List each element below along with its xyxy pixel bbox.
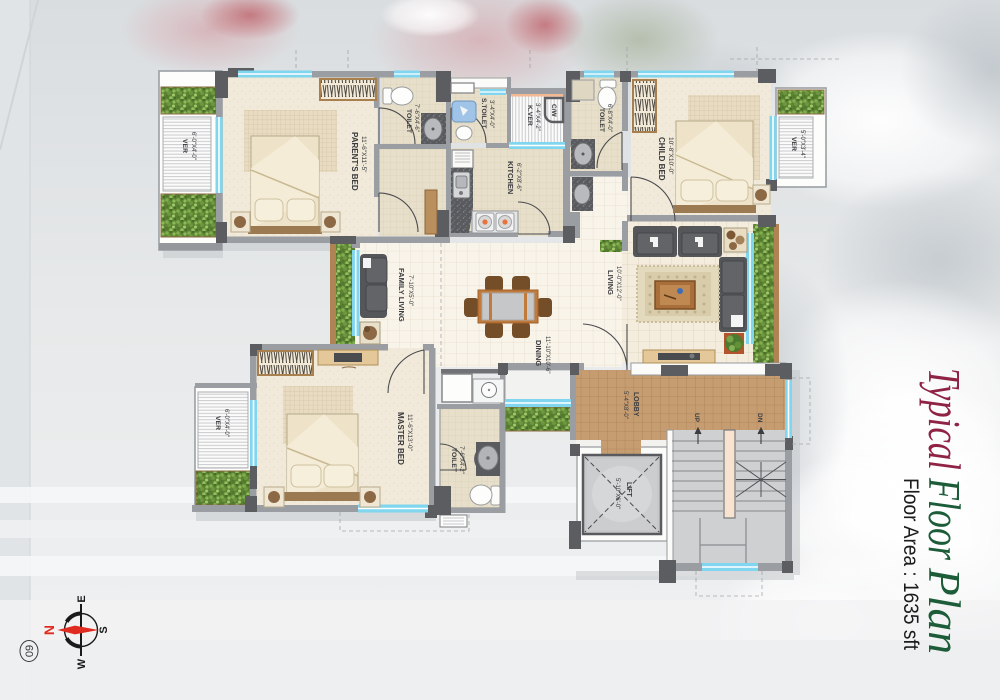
svg-text:6'-0"X4'-0": 6'-0"X4'-0" [223,409,229,437]
svg-text:C/W: C/W [550,104,557,118]
svg-text:6'-2"X8'-6": 6'-2"X8'-6" [515,163,521,191]
svg-text:FAMILY LIVING: FAMILY LIVING [397,268,406,322]
svg-text:11'-10"X10'-6": 11'-10"X10'-6" [544,336,550,373]
svg-text:VER: VER [790,137,797,151]
svg-text:TOILET: TOILET [450,448,457,473]
svg-text:TOILET: TOILET [598,108,605,133]
svg-text:MASTER BED: MASTER BED [396,412,405,465]
svg-text:10'-0"X12'-0": 10'-0"X12'-0" [615,266,621,301]
svg-text:DN: DN [756,413,763,423]
svg-text:S.TOILET: S.TOILET [480,98,487,129]
svg-text:VER: VER [181,139,188,153]
svg-text:LIFT: LIFT [625,482,632,497]
svg-text:S: S [98,626,110,633]
svg-text:W: W [76,658,88,669]
svg-text:VER: VER [214,416,221,430]
svg-text:Typical: Typical [919,368,970,470]
svg-text:5'-4"X8'-0": 5'-4"X8'-0" [622,391,628,419]
svg-text:Floor Area : 1635 sft: Floor Area : 1635 sft [899,478,923,650]
svg-text:3'-4"X4'-0": 3'-4"X4'-0" [488,100,494,128]
svg-text:TOILET: TOILET [405,109,412,134]
svg-text:UP: UP [693,413,700,423]
svg-text:LIVING: LIVING [606,270,615,295]
svg-text:6'-0"X4'-0": 6'-0"X4'-0" [190,132,196,160]
svg-text:E: E [76,595,88,602]
svg-text:7'-10"X5'-0": 7'-10"X5'-0" [407,275,413,306]
svg-text:Plan: Plan [919,567,970,654]
svg-text:Floor: Floor [919,477,970,561]
svg-text:09: 09 [24,645,36,657]
svg-text:6'-8"X4'-0": 6'-8"X4'-0" [606,104,612,132]
svg-text:7'-6"X4'-6": 7'-6"X4'-6" [413,104,419,132]
svg-text:CHILD BED: CHILD BED [657,137,666,181]
svg-text:10'-8"X10'-0": 10'-8"X10'-0" [667,137,674,175]
svg-text:5'-0"X3'-4": 5'-0"X3'-4" [799,130,805,158]
svg-text:3'-4"X4'-2": 3'-4"X4'-2" [534,103,540,131]
svg-text:11'-6"X13'-0": 11'-6"X13'-0" [406,414,413,452]
svg-text:PARENT'S BED: PARENT'S BED [350,132,359,191]
svg-text:11'-6"X11'-5": 11'-6"X11'-5" [360,136,367,173]
svg-text:5'-10"X6'-0": 5'-10"X6'-0" [614,478,620,509]
svg-text:DINING: DINING [534,340,543,366]
svg-text:7'-6"X4'-2": 7'-6"X4'-2" [458,446,464,474]
svg-text:N: N [41,625,57,635]
svg-text:K.VER: K.VER [526,105,533,126]
svg-text:KITCHEN: KITCHEN [506,161,515,194]
svg-text:LOBBY: LOBBY [632,392,639,417]
